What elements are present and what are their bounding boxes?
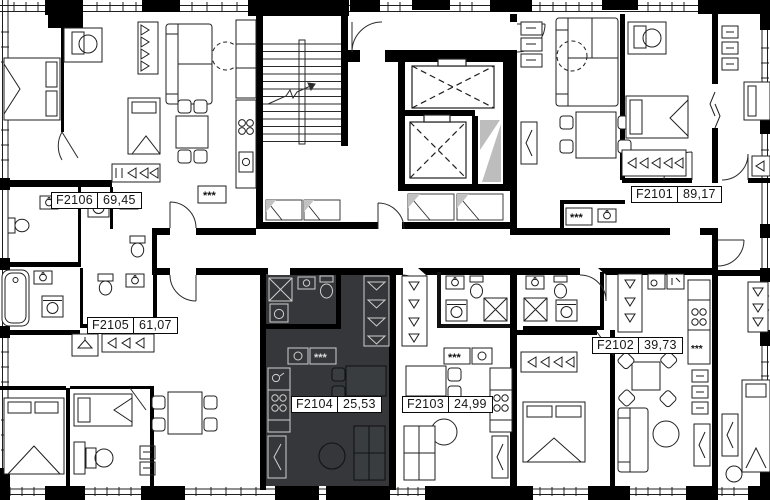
unit-area: 25,53 bbox=[338, 397, 381, 412]
laundry-boxes bbox=[648, 274, 684, 289]
vent-box: *** bbox=[444, 348, 470, 364]
pouf bbox=[653, 421, 679, 447]
single-bed bbox=[626, 96, 688, 138]
unit-id: F2102 bbox=[593, 338, 639, 353]
unit-label-f2105[interactable]: F2105 61,07 bbox=[87, 317, 178, 334]
desk-and-chair bbox=[64, 28, 102, 62]
bedroom-wardrobe bbox=[622, 150, 686, 176]
unit-id: F2103 bbox=[403, 397, 449, 412]
wardrobe-strip bbox=[402, 276, 427, 346]
corridor-niches bbox=[266, 194, 503, 220]
bathroom bbox=[446, 276, 507, 321]
dining-table-2 bbox=[152, 392, 217, 434]
closet-slide bbox=[694, 424, 710, 466]
single-bed bbox=[128, 98, 160, 154]
double-bed bbox=[4, 58, 60, 120]
sofa-bed bbox=[404, 426, 435, 480]
bed-vertical bbox=[742, 380, 770, 472]
unit-id: F2101 bbox=[632, 187, 678, 202]
vent-symbol: *** bbox=[314, 352, 328, 364]
sliding-door bbox=[710, 92, 720, 128]
sink-icon bbox=[34, 271, 52, 284]
unit-area: 69,45 bbox=[98, 193, 141, 208]
unit-f2106: *** bbox=[4, 20, 256, 257]
sofa-l bbox=[556, 18, 618, 106]
bathroom-2 bbox=[98, 274, 144, 295]
floor-plan-drawing: *** bbox=[0, 0, 770, 500]
svg-text:***: *** bbox=[203, 190, 217, 202]
unit-area: 24,99 bbox=[449, 397, 492, 412]
elevator-2-icon bbox=[410, 115, 466, 178]
door-f2105-entry bbox=[170, 275, 196, 301]
desk-and-chair bbox=[628, 22, 666, 54]
unit-id: F2104 bbox=[292, 397, 338, 412]
bedroom-wardrobe bbox=[521, 352, 577, 372]
unit-area: 61,07 bbox=[134, 318, 177, 333]
table-2 bbox=[406, 366, 461, 399]
unit-label-f2101[interactable]: F2101 89,17 bbox=[631, 186, 722, 203]
unit-f2102: *** bbox=[521, 274, 710, 472]
kitchen-column: *** bbox=[688, 280, 710, 414]
unit-id: F2105 bbox=[88, 318, 134, 333]
floor-plan: *** bbox=[0, 0, 770, 500]
sofa bbox=[618, 408, 648, 472]
unit-f2103: *** bbox=[402, 272, 512, 480]
svg-text:***: *** bbox=[691, 344, 703, 355]
hall-closet bbox=[112, 164, 160, 182]
door-f2106-bedroom bbox=[58, 132, 78, 160]
washing-machine-icon bbox=[42, 296, 63, 317]
sofa bbox=[166, 24, 212, 104]
elevator-1-icon bbox=[412, 59, 494, 108]
unit-label-f2104[interactable]: F2104 25,53 bbox=[291, 396, 382, 413]
unit-id: F2106 bbox=[52, 193, 98, 208]
coat-hanger bbox=[72, 334, 98, 356]
wardrobe-strip bbox=[618, 274, 642, 332]
unit-area: 39,73 bbox=[639, 338, 682, 353]
unit-label-f2102[interactable]: F2102 39,73 bbox=[592, 337, 683, 354]
wardrobe-strip bbox=[138, 22, 158, 74]
door-right-unit bbox=[718, 240, 744, 266]
right-room bbox=[710, 26, 770, 128]
staircase bbox=[263, 40, 341, 144]
svg-text:***: *** bbox=[570, 212, 584, 224]
kid-desk-chair bbox=[74, 442, 113, 474]
kid-bed bbox=[74, 394, 132, 426]
stairs-direction-arrow bbox=[268, 84, 315, 104]
unit-right-partial bbox=[722, 282, 770, 482]
sofa-bed bbox=[354, 426, 385, 480]
shaft-hatch bbox=[480, 120, 501, 182]
closet-slide bbox=[492, 436, 508, 478]
double-bed bbox=[523, 402, 585, 462]
closet-slide bbox=[722, 414, 738, 456]
kitchen-column bbox=[490, 368, 512, 432]
kitchen-cabinets bbox=[521, 22, 542, 164]
bathtub bbox=[2, 270, 29, 326]
kitchen-strip bbox=[236, 20, 256, 188]
dining-table bbox=[176, 100, 208, 163]
bathroom: *** bbox=[566, 208, 616, 225]
unit-f2105 bbox=[2, 270, 217, 475]
hall-wardrobe bbox=[102, 334, 154, 352]
unit-area: 89,17 bbox=[678, 187, 721, 202]
toilet-icon bbox=[470, 276, 483, 298]
door-f2106-entry bbox=[170, 202, 196, 228]
master-bed bbox=[4, 398, 64, 474]
door-stair-hall bbox=[352, 22, 382, 52]
door-core-corridor bbox=[378, 203, 404, 229]
wardrobe-strip bbox=[748, 282, 768, 332]
kitchen-sink bbox=[472, 348, 492, 364]
side-table bbox=[726, 466, 742, 482]
vent-box: *** bbox=[198, 186, 226, 203]
unit-label-f2106[interactable]: F2106 69,45 bbox=[51, 192, 142, 209]
unit-label-f2103[interactable]: F2103 24,99 bbox=[402, 396, 493, 413]
elevator-block bbox=[410, 59, 501, 182]
dining-table-diag bbox=[617, 351, 678, 408]
svg-text:***: *** bbox=[448, 352, 462, 364]
door-f2101-hall-2 bbox=[722, 154, 748, 180]
toilet-icon bbox=[554, 276, 567, 298]
bathroom bbox=[524, 276, 577, 321]
hall-closet bbox=[752, 156, 770, 176]
unit-f2104[interactable]: *** bbox=[266, 275, 389, 486]
